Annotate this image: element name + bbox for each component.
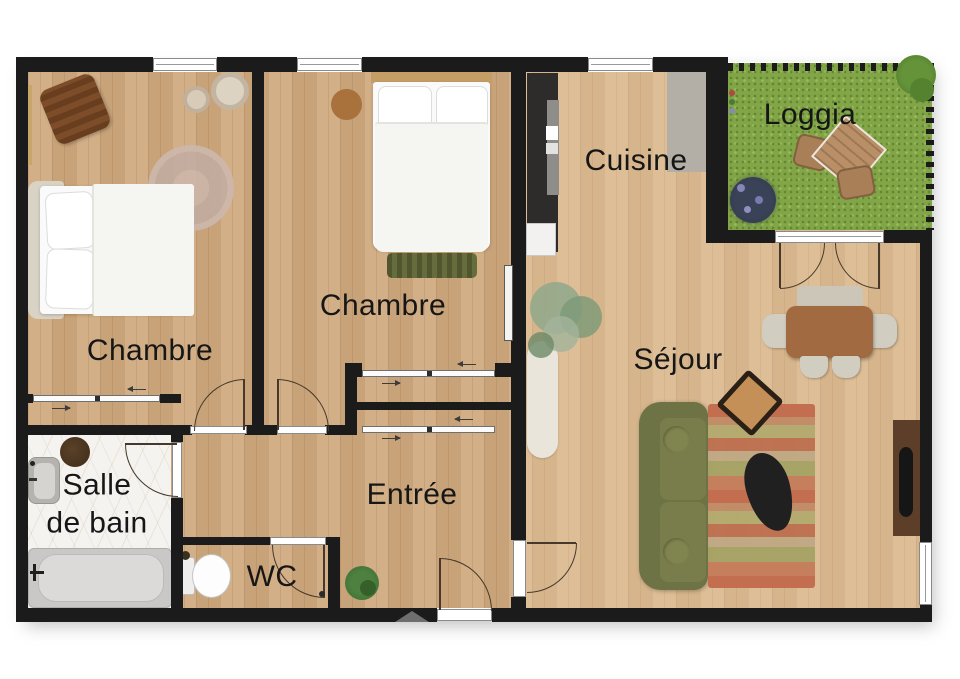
wall <box>884 230 932 243</box>
kitchen-sink <box>546 126 558 140</box>
wall <box>511 72 526 540</box>
bathroom-stool <box>60 437 90 467</box>
wall <box>492 608 932 622</box>
wall <box>920 230 932 542</box>
wall <box>345 402 526 410</box>
wall <box>171 498 183 622</box>
lavender-bloom <box>744 206 751 213</box>
lavender-bloom <box>755 196 763 204</box>
door-leaf <box>779 243 781 288</box>
wall <box>16 57 28 622</box>
tub-faucet <box>33 564 36 581</box>
wall <box>171 425 183 442</box>
slide-arrow-icon <box>128 389 146 390</box>
toilet-bowl <box>192 554 231 598</box>
door-sill <box>270 537 326 545</box>
sink-handle <box>29 478 37 481</box>
room-label-sejour: Séjour <box>633 343 722 377</box>
door-leaf <box>527 542 576 544</box>
sliding-door-entree <box>362 426 495 433</box>
flower-pot <box>729 90 735 96</box>
appliance <box>526 223 556 256</box>
window <box>297 58 362 71</box>
dining-chair <box>870 314 897 348</box>
door-stop <box>319 591 325 597</box>
lavender-bloom <box>737 184 745 192</box>
door-leaf <box>125 443 177 445</box>
door-leaf <box>439 558 441 610</box>
dining-bench <box>797 286 863 308</box>
wall <box>511 597 526 612</box>
slide-arrow-icon <box>458 364 476 365</box>
sofa-bolster <box>663 538 690 565</box>
slide-arrow-icon <box>52 408 70 409</box>
wall <box>16 425 192 435</box>
room-label-salle-de-bain: Salle de bain <box>46 467 147 542</box>
window <box>588 58 653 71</box>
wall <box>920 605 932 622</box>
wall <box>362 57 588 72</box>
plant-foliage <box>528 332 554 358</box>
pouf-small <box>183 86 210 113</box>
dining-table <box>786 306 873 358</box>
lavender-plant <box>730 177 776 223</box>
wall <box>495 363 526 377</box>
slide-arrow-icon <box>382 383 400 384</box>
wall <box>328 537 340 622</box>
duvet <box>92 184 194 316</box>
window <box>153 58 217 71</box>
bathtub-basin <box>38 554 164 602</box>
wall <box>325 425 357 435</box>
wall <box>706 230 775 243</box>
slide-arrow-icon <box>455 419 473 420</box>
flower-pot <box>729 99 735 105</box>
room-label-chambre2: Chambre <box>320 289 446 323</box>
wall <box>217 57 297 72</box>
room-label-wc: WC <box>247 560 298 594</box>
entrance-marker <box>395 611 429 622</box>
door-leaf <box>243 379 245 430</box>
entry-plant <box>360 580 376 596</box>
duvet <box>375 122 488 252</box>
fern-plant <box>910 78 934 102</box>
wall <box>245 425 277 435</box>
flower-pot <box>729 108 735 114</box>
sink-faucet <box>30 461 35 466</box>
radiator <box>504 265 513 341</box>
runner-rug <box>527 341 558 458</box>
wall <box>16 57 153 72</box>
dining-chair <box>762 314 789 348</box>
dining-chair <box>800 356 828 378</box>
wall <box>171 537 270 545</box>
door-leaf <box>277 379 279 430</box>
wall <box>706 57 728 243</box>
room-label-salle-de-bain-line2: de bain <box>46 504 147 542</box>
wall <box>160 394 181 403</box>
floor-plan: Chambre Chambre Cuisine Loggia Séjour En… <box>0 0 960 679</box>
room-label-entree: Entrée <box>367 478 458 512</box>
pouf-large <box>211 72 249 110</box>
room-label-chambre1: Chambre <box>87 334 213 368</box>
sliding-door-chambre1 <box>33 395 160 402</box>
dining-chair <box>832 356 860 378</box>
wall <box>16 608 437 622</box>
door-leaf <box>878 243 880 288</box>
room-label-salle-de-bain-line1: Salle <box>46 467 147 505</box>
pillow <box>45 191 96 250</box>
pouf <box>331 89 362 120</box>
tv <box>899 447 913 517</box>
sliding-door-chambre2 <box>362 370 495 377</box>
outdoor-chair <box>836 164 877 201</box>
room-label-cuisine: Cuisine <box>585 144 688 178</box>
sofa-bolster <box>663 426 690 453</box>
french-door-frame <box>775 231 884 243</box>
door-sill <box>513 540 526 597</box>
pillow <box>45 248 95 310</box>
room-label-loggia: Loggia <box>764 98 857 132</box>
window <box>919 542 932 605</box>
kitchen-sink <box>546 143 558 154</box>
slide-arrow-icon <box>382 438 400 439</box>
wall <box>252 72 264 435</box>
radiator <box>28 85 32 165</box>
bed-bench <box>387 253 477 278</box>
door-leaf <box>323 545 325 597</box>
